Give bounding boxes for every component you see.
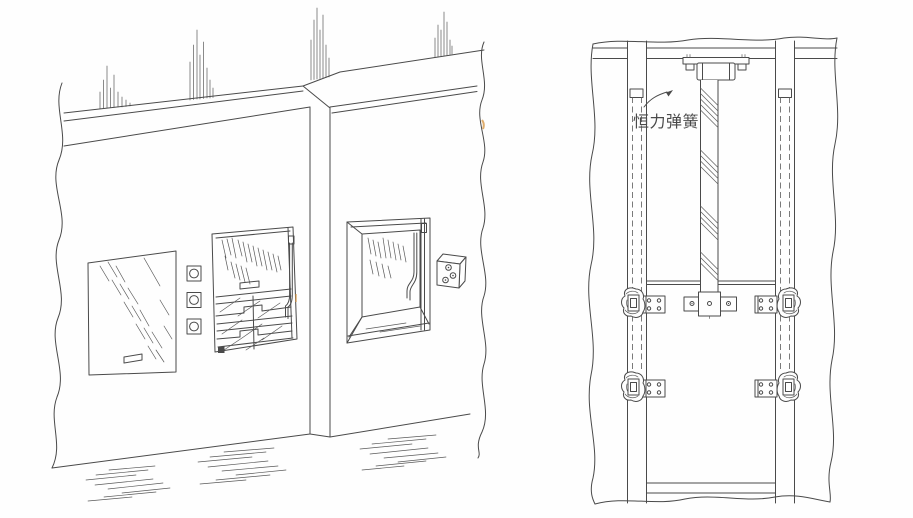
door-bottom-crossbar [647,483,776,493]
dumbwaiter-wall-perspective-view [0,0,540,518]
leader-arrow-line [644,92,667,107]
spring-anchor-bracket [684,292,737,319]
annotation-label: 恒力弹簧 [633,112,699,131]
dumbwaiter-opening [347,218,430,343]
illustration-canvas: 恒力弹簧 [0,0,913,518]
guide-rail-right [776,41,795,503]
call-button-middle [187,293,201,308]
service-door-half-open [212,227,297,353]
call-button-panel [187,266,201,334]
glass-door-panel [88,251,176,375]
torn-edge-right [478,42,486,458]
wall-top-hatch-marks [100,8,452,109]
cornice-beam [64,50,484,146]
call-button-bottom [187,319,201,334]
flange-tab-right [738,64,746,70]
torn-edge-left [52,83,63,468]
constant-force-spring-detail-view: 恒力弹簧 [540,0,913,518]
stop-block [218,347,225,354]
floor-hatching [86,435,446,501]
guide-rail-left [628,41,647,503]
flange-tab-left [686,64,694,70]
spring-band [701,80,719,292]
leader-arrow-head [666,90,673,97]
call-button-top [187,266,201,281]
wall-corner-column [310,107,330,437]
constant-force-spring-assembly [683,55,749,319]
control-box [437,254,466,288]
